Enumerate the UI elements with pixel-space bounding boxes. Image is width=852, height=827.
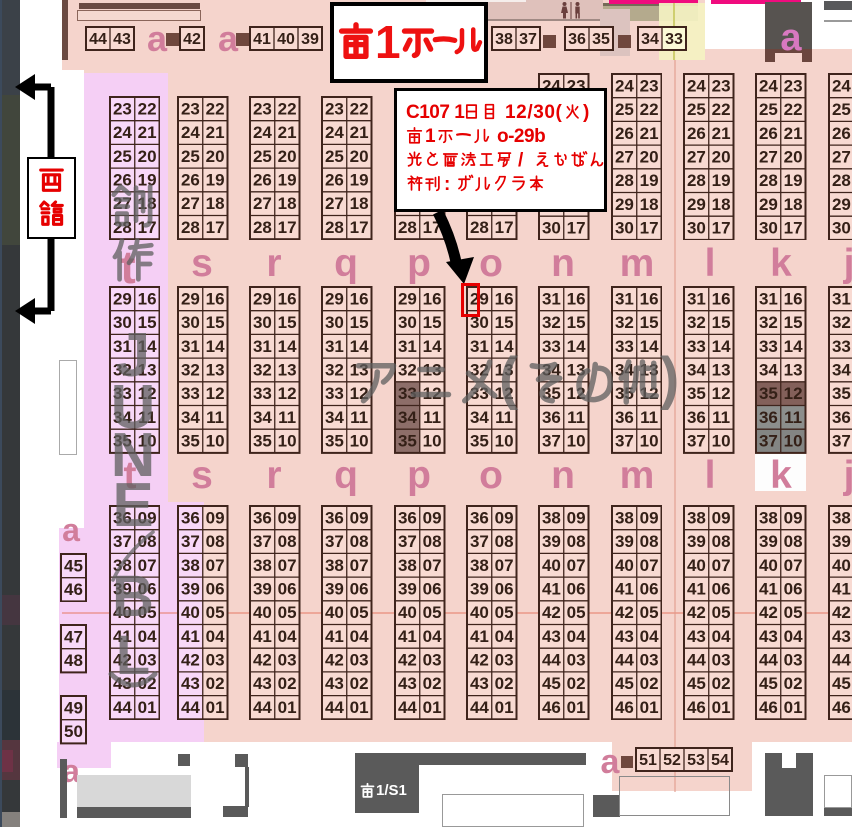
svg-text:35: 35 — [832, 384, 851, 403]
svg-text:19: 19 — [206, 170, 225, 189]
svg-text:33: 33 — [759, 337, 778, 356]
svg-text:28: 28 — [325, 218, 344, 237]
svg-text:44: 44 — [542, 650, 561, 669]
svg-text:42: 42 — [542, 603, 561, 622]
svg-text:43: 43 — [398, 674, 417, 693]
svg-text:02: 02 — [278, 674, 297, 693]
svg-text:14: 14 — [206, 337, 225, 356]
svg-text:10: 10 — [350, 431, 369, 450]
svg-text:10: 10 — [639, 431, 658, 450]
svg-text:08: 08 — [567, 532, 586, 551]
svg-text:44: 44 — [759, 650, 778, 669]
svg-text:33: 33 — [832, 337, 851, 356]
svg-text:43: 43 — [470, 674, 489, 693]
svg-text:17: 17 — [639, 218, 658, 237]
svg-text:53: 53 — [687, 752, 705, 769]
svg-text:01: 01 — [567, 698, 586, 717]
svg-text:43: 43 — [687, 627, 706, 646]
svg-text:21: 21 — [206, 123, 225, 142]
svg-text:47: 47 — [64, 628, 83, 647]
svg-text:25: 25 — [759, 100, 778, 119]
svg-text:17: 17 — [784, 218, 803, 237]
svg-text:07: 07 — [784, 556, 803, 575]
svg-text:05: 05 — [350, 603, 369, 622]
svg-text:04: 04 — [495, 627, 514, 646]
svg-text:43: 43 — [325, 674, 344, 693]
svg-text:19: 19 — [350, 170, 369, 189]
svg-text:04: 04 — [350, 627, 369, 646]
svg-text:33: 33 — [687, 337, 706, 356]
svg-text:49: 49 — [64, 699, 83, 718]
svg-text:21: 21 — [639, 123, 658, 142]
svg-text:04: 04 — [423, 627, 442, 646]
svg-text:37: 37 — [614, 431, 633, 450]
svg-text:27: 27 — [181, 194, 200, 213]
svg-text:10: 10 — [495, 431, 514, 450]
svg-text:35: 35 — [687, 384, 706, 403]
svg-text:21: 21 — [278, 123, 297, 142]
svg-text:09: 09 — [206, 508, 225, 527]
svg-text:16: 16 — [784, 289, 803, 308]
svg-text:14: 14 — [639, 337, 658, 356]
svg-text:14: 14 — [350, 337, 369, 356]
svg-text:33: 33 — [665, 31, 683, 48]
svg-text:05: 05 — [278, 603, 297, 622]
svg-text:08: 08 — [712, 532, 731, 551]
svg-text:42: 42 — [325, 650, 344, 669]
svg-text:40: 40 — [398, 603, 417, 622]
svg-text:34: 34 — [181, 408, 200, 427]
svg-text:02: 02 — [639, 674, 658, 693]
svg-text:27: 27 — [325, 194, 344, 213]
svg-text:39: 39 — [470, 579, 489, 598]
svg-text:27: 27 — [253, 194, 272, 213]
svg-text:23: 23 — [112, 99, 131, 118]
svg-text:01: 01 — [784, 698, 803, 717]
svg-text:06: 06 — [278, 579, 297, 598]
svg-text:35: 35 — [181, 431, 200, 450]
svg-text:41: 41 — [398, 627, 417, 646]
svg-text:44: 44 — [398, 698, 417, 717]
svg-text:41: 41 — [470, 627, 489, 646]
svg-text:09: 09 — [639, 508, 658, 527]
svg-text:42: 42 — [687, 603, 706, 622]
svg-text:44: 44 — [832, 650, 851, 669]
svg-text:22: 22 — [350, 99, 369, 118]
svg-text:25: 25 — [253, 147, 272, 166]
svg-text:44: 44 — [470, 698, 489, 717]
svg-text:05: 05 — [784, 603, 803, 622]
svg-text:28: 28 — [832, 171, 851, 190]
svg-text:24: 24 — [112, 123, 131, 142]
svg-text:04: 04 — [206, 627, 225, 646]
svg-text:14: 14 — [784, 337, 803, 356]
svg-text:03: 03 — [423, 650, 442, 669]
svg-text:15: 15 — [567, 313, 586, 332]
svg-text:32: 32 — [542, 313, 561, 332]
svg-text:22: 22 — [784, 100, 803, 119]
svg-text:07: 07 — [278, 556, 297, 575]
svg-text:31: 31 — [181, 337, 200, 356]
svg-text:15: 15 — [423, 313, 442, 332]
svg-text:30: 30 — [325, 313, 344, 332]
svg-text:43: 43 — [253, 674, 272, 693]
svg-text:30: 30 — [181, 313, 200, 332]
svg-text:11: 11 — [712, 408, 730, 427]
svg-text:42: 42 — [832, 603, 851, 622]
svg-text:52: 52 — [663, 752, 681, 769]
svg-text:15: 15 — [350, 313, 369, 332]
svg-text:37: 37 — [687, 431, 706, 450]
svg-text:40: 40 — [614, 556, 633, 575]
svg-text:26: 26 — [759, 123, 778, 142]
svg-text:16: 16 — [567, 289, 586, 308]
svg-text:20: 20 — [784, 147, 803, 166]
svg-text:17: 17 — [567, 218, 586, 237]
svg-text:26: 26 — [832, 123, 851, 142]
svg-text:38: 38 — [542, 508, 561, 527]
svg-text:33: 33 — [253, 384, 272, 403]
svg-text:45: 45 — [542, 674, 561, 693]
svg-text:23: 23 — [639, 76, 658, 95]
svg-text:19: 19 — [784, 171, 803, 190]
svg-text:31: 31 — [832, 289, 851, 308]
svg-text:30: 30 — [759, 218, 778, 237]
svg-text:02: 02 — [495, 674, 514, 693]
svg-text:39: 39 — [759, 532, 778, 551]
svg-text:02: 02 — [712, 674, 731, 693]
svg-text:29: 29 — [398, 289, 417, 308]
svg-text:42: 42 — [470, 650, 489, 669]
svg-text:11: 11 — [640, 408, 658, 427]
svg-text:36: 36 — [325, 508, 344, 527]
svg-text:27: 27 — [614, 147, 633, 166]
svg-text:41: 41 — [325, 627, 344, 646]
svg-text:25: 25 — [181, 147, 200, 166]
svg-text:23: 23 — [253, 99, 272, 118]
svg-text:36: 36 — [614, 408, 633, 427]
svg-text:36: 36 — [470, 508, 489, 527]
svg-text:32: 32 — [687, 313, 706, 332]
svg-text:18: 18 — [712, 194, 731, 213]
svg-text:31: 31 — [325, 337, 344, 356]
svg-text:34: 34 — [641, 31, 659, 48]
svg-text:38: 38 — [495, 31, 513, 48]
svg-text:33: 33 — [614, 337, 633, 356]
svg-text:03: 03 — [712, 650, 731, 669]
svg-text:20: 20 — [639, 147, 658, 166]
svg-text:45: 45 — [832, 674, 851, 693]
svg-text:37: 37 — [759, 431, 778, 450]
svg-text:26: 26 — [181, 170, 200, 189]
svg-text:08: 08 — [639, 532, 658, 551]
svg-text:10: 10 — [278, 431, 297, 450]
svg-text:13: 13 — [206, 360, 225, 379]
svg-text:24: 24 — [181, 123, 200, 142]
svg-text:23: 23 — [325, 99, 344, 118]
svg-text:25: 25 — [112, 147, 131, 166]
svg-text:22: 22 — [639, 100, 658, 119]
svg-text:13: 13 — [784, 360, 803, 379]
svg-text:38: 38 — [253, 556, 272, 575]
svg-text:36: 36 — [832, 408, 851, 427]
svg-text:19: 19 — [712, 171, 731, 190]
svg-text:37: 37 — [398, 532, 417, 551]
svg-text:39: 39 — [325, 579, 344, 598]
svg-text:34: 34 — [470, 408, 489, 427]
svg-text:18: 18 — [206, 194, 225, 213]
svg-text:41: 41 — [687, 579, 706, 598]
svg-text:41: 41 — [253, 627, 272, 646]
svg-text:15: 15 — [206, 313, 225, 332]
svg-text:05: 05 — [712, 603, 731, 622]
svg-text:25: 25 — [614, 100, 633, 119]
svg-text:28: 28 — [253, 218, 272, 237]
svg-text:06: 06 — [350, 579, 369, 598]
svg-text:48: 48 — [64, 651, 83, 670]
svg-text:46: 46 — [542, 698, 561, 717]
svg-text:24: 24 — [253, 123, 272, 142]
svg-text:18: 18 — [639, 194, 658, 213]
svg-text:07: 07 — [712, 556, 731, 575]
svg-text:09: 09 — [495, 508, 514, 527]
svg-text:07: 07 — [495, 556, 514, 575]
svg-text:29: 29 — [614, 194, 633, 213]
svg-text:24: 24 — [614, 76, 633, 95]
svg-text:40: 40 — [181, 603, 200, 622]
svg-text:44: 44 — [89, 31, 107, 48]
svg-text:40: 40 — [759, 556, 778, 575]
svg-text:01: 01 — [639, 698, 658, 717]
svg-text:04: 04 — [567, 627, 586, 646]
svg-text:06: 06 — [712, 579, 731, 598]
svg-text:45: 45 — [64, 556, 83, 575]
svg-text:35: 35 — [759, 384, 778, 403]
svg-text:36: 36 — [253, 508, 272, 527]
svg-text:18: 18 — [350, 194, 369, 213]
svg-text:05: 05 — [423, 603, 442, 622]
svg-text:03: 03 — [639, 650, 658, 669]
svg-text:32: 32 — [759, 313, 778, 332]
svg-text:34: 34 — [759, 360, 778, 379]
svg-text:06: 06 — [206, 579, 225, 598]
svg-text:34: 34 — [687, 360, 706, 379]
svg-text:37: 37 — [325, 532, 344, 551]
svg-text:18: 18 — [784, 194, 803, 213]
svg-text:19: 19 — [639, 171, 658, 190]
svg-text:01: 01 — [278, 698, 297, 717]
svg-text:24: 24 — [687, 76, 706, 95]
svg-text:31: 31 — [398, 337, 417, 356]
svg-text:10: 10 — [567, 431, 586, 450]
svg-text:10: 10 — [206, 431, 225, 450]
svg-text:31: 31 — [759, 289, 778, 308]
svg-text:08: 08 — [278, 532, 297, 551]
svg-text:36: 36 — [759, 408, 778, 427]
svg-text:20: 20 — [278, 147, 297, 166]
svg-text:16: 16 — [350, 289, 369, 308]
svg-text:18: 18 — [278, 194, 297, 213]
svg-text:46: 46 — [759, 698, 778, 717]
svg-text:28: 28 — [398, 218, 417, 237]
svg-text:11: 11 — [567, 408, 585, 427]
svg-text:16: 16 — [206, 289, 225, 308]
svg-text:06: 06 — [567, 579, 586, 598]
svg-text:40: 40 — [470, 603, 489, 622]
svg-text:45: 45 — [759, 674, 778, 693]
svg-text:15: 15 — [639, 313, 658, 332]
svg-text:11: 11 — [350, 408, 368, 427]
svg-text:41: 41 — [614, 579, 633, 598]
svg-text:06: 06 — [639, 579, 658, 598]
svg-text:41: 41 — [832, 579, 851, 598]
svg-text:15: 15 — [712, 313, 731, 332]
svg-text:41: 41 — [181, 627, 200, 646]
svg-text:38: 38 — [181, 556, 200, 575]
svg-text:37: 37 — [253, 532, 272, 551]
svg-text:19: 19 — [278, 170, 297, 189]
svg-text:03: 03 — [495, 650, 514, 669]
svg-text:01: 01 — [495, 698, 514, 717]
svg-text:13: 13 — [712, 360, 731, 379]
svg-text:28: 28 — [614, 171, 633, 190]
svg-text:36: 36 — [181, 508, 200, 527]
svg-text:12: 12 — [206, 384, 225, 403]
svg-text:08: 08 — [495, 532, 514, 551]
svg-text:46: 46 — [687, 698, 706, 717]
svg-text:32: 32 — [253, 360, 272, 379]
svg-text:01: 01 — [423, 698, 442, 717]
svg-text:43: 43 — [759, 627, 778, 646]
svg-text:20: 20 — [206, 147, 225, 166]
svg-text:38: 38 — [398, 556, 417, 575]
svg-text:39: 39 — [687, 532, 706, 551]
svg-text:35: 35 — [325, 431, 344, 450]
svg-text:15: 15 — [784, 313, 803, 332]
svg-text:27: 27 — [759, 147, 778, 166]
svg-text:11: 11 — [423, 408, 441, 427]
svg-text:04: 04 — [712, 627, 731, 646]
svg-text:41: 41 — [542, 579, 561, 598]
svg-text:03: 03 — [206, 650, 225, 669]
svg-text:25: 25 — [832, 100, 851, 119]
svg-text:42: 42 — [181, 650, 200, 669]
svg-text:20: 20 — [712, 147, 731, 166]
svg-text:25: 25 — [687, 100, 706, 119]
svg-text:03: 03 — [784, 650, 803, 669]
svg-text:30: 30 — [398, 313, 417, 332]
svg-text:17: 17 — [495, 218, 514, 237]
svg-text:21: 21 — [350, 123, 369, 142]
svg-text:30: 30 — [832, 218, 851, 237]
svg-text:38: 38 — [832, 508, 851, 527]
svg-text:17: 17 — [278, 218, 297, 237]
svg-text:31: 31 — [470, 337, 489, 356]
svg-text:34: 34 — [398, 408, 417, 427]
svg-text:39: 39 — [832, 532, 851, 551]
svg-text:32: 32 — [832, 313, 851, 332]
svg-text:25: 25 — [325, 147, 344, 166]
svg-text:46: 46 — [64, 580, 83, 599]
svg-text:40: 40 — [687, 556, 706, 575]
svg-text:36: 36 — [398, 508, 417, 527]
svg-text:50: 50 — [64, 722, 83, 741]
svg-text:39: 39 — [301, 31, 319, 48]
svg-text:35: 35 — [253, 431, 272, 450]
svg-text:36: 36 — [568, 31, 586, 48]
svg-text:38: 38 — [614, 508, 633, 527]
svg-text:13: 13 — [278, 360, 297, 379]
svg-text:23: 23 — [784, 76, 803, 95]
svg-text:12: 12 — [784, 384, 803, 403]
svg-text:39: 39 — [614, 532, 633, 551]
svg-text:45: 45 — [687, 674, 706, 693]
svg-text:38: 38 — [325, 556, 344, 575]
svg-text:01: 01 — [206, 698, 225, 717]
svg-text:40: 40 — [542, 556, 561, 575]
svg-text:41: 41 — [253, 31, 271, 48]
svg-text:34: 34 — [832, 360, 851, 379]
svg-text:01: 01 — [350, 698, 369, 717]
svg-text:21: 21 — [712, 123, 731, 142]
svg-text:09: 09 — [712, 508, 731, 527]
svg-text:29: 29 — [832, 194, 851, 213]
svg-text:22: 22 — [712, 100, 731, 119]
svg-text:29: 29 — [687, 194, 706, 213]
svg-text:35: 35 — [398, 431, 417, 450]
svg-text:44: 44 — [112, 698, 131, 717]
svg-text:14: 14 — [278, 337, 297, 356]
svg-text:30: 30 — [687, 218, 706, 237]
svg-text:28: 28 — [759, 171, 778, 190]
svg-text:37: 37 — [832, 431, 851, 450]
svg-text:20: 20 — [137, 147, 156, 166]
svg-text:11: 11 — [278, 408, 296, 427]
svg-text:10: 10 — [784, 431, 803, 450]
svg-text:09: 09 — [423, 508, 442, 527]
svg-text:23: 23 — [181, 99, 200, 118]
svg-text:35: 35 — [592, 31, 610, 48]
svg-text:46: 46 — [832, 698, 851, 717]
svg-text:27: 27 — [687, 147, 706, 166]
svg-text:44: 44 — [253, 698, 272, 717]
svg-text:36: 36 — [687, 408, 706, 427]
svg-text:38: 38 — [470, 556, 489, 575]
svg-text:24: 24 — [759, 76, 778, 95]
svg-text:01: 01 — [137, 698, 156, 717]
svg-text:12: 12 — [712, 384, 731, 403]
svg-text:06: 06 — [784, 579, 803, 598]
svg-text:07: 07 — [423, 556, 442, 575]
svg-text:43: 43 — [614, 627, 633, 646]
svg-text:39: 39 — [181, 579, 200, 598]
svg-text:08: 08 — [423, 532, 442, 551]
svg-text:39: 39 — [253, 579, 272, 598]
svg-text:26: 26 — [687, 123, 706, 142]
svg-text:37: 37 — [542, 431, 561, 450]
svg-text:17: 17 — [712, 218, 731, 237]
svg-text:02: 02 — [423, 674, 442, 693]
svg-text:36: 36 — [542, 408, 561, 427]
svg-text:31: 31 — [542, 289, 561, 308]
svg-text:04: 04 — [784, 627, 803, 646]
svg-text:07: 07 — [350, 556, 369, 575]
svg-text:01: 01 — [712, 698, 731, 717]
svg-text:27: 27 — [832, 147, 851, 166]
svg-text:05: 05 — [206, 603, 225, 622]
svg-text:21: 21 — [784, 123, 803, 142]
svg-text:41: 41 — [759, 579, 778, 598]
